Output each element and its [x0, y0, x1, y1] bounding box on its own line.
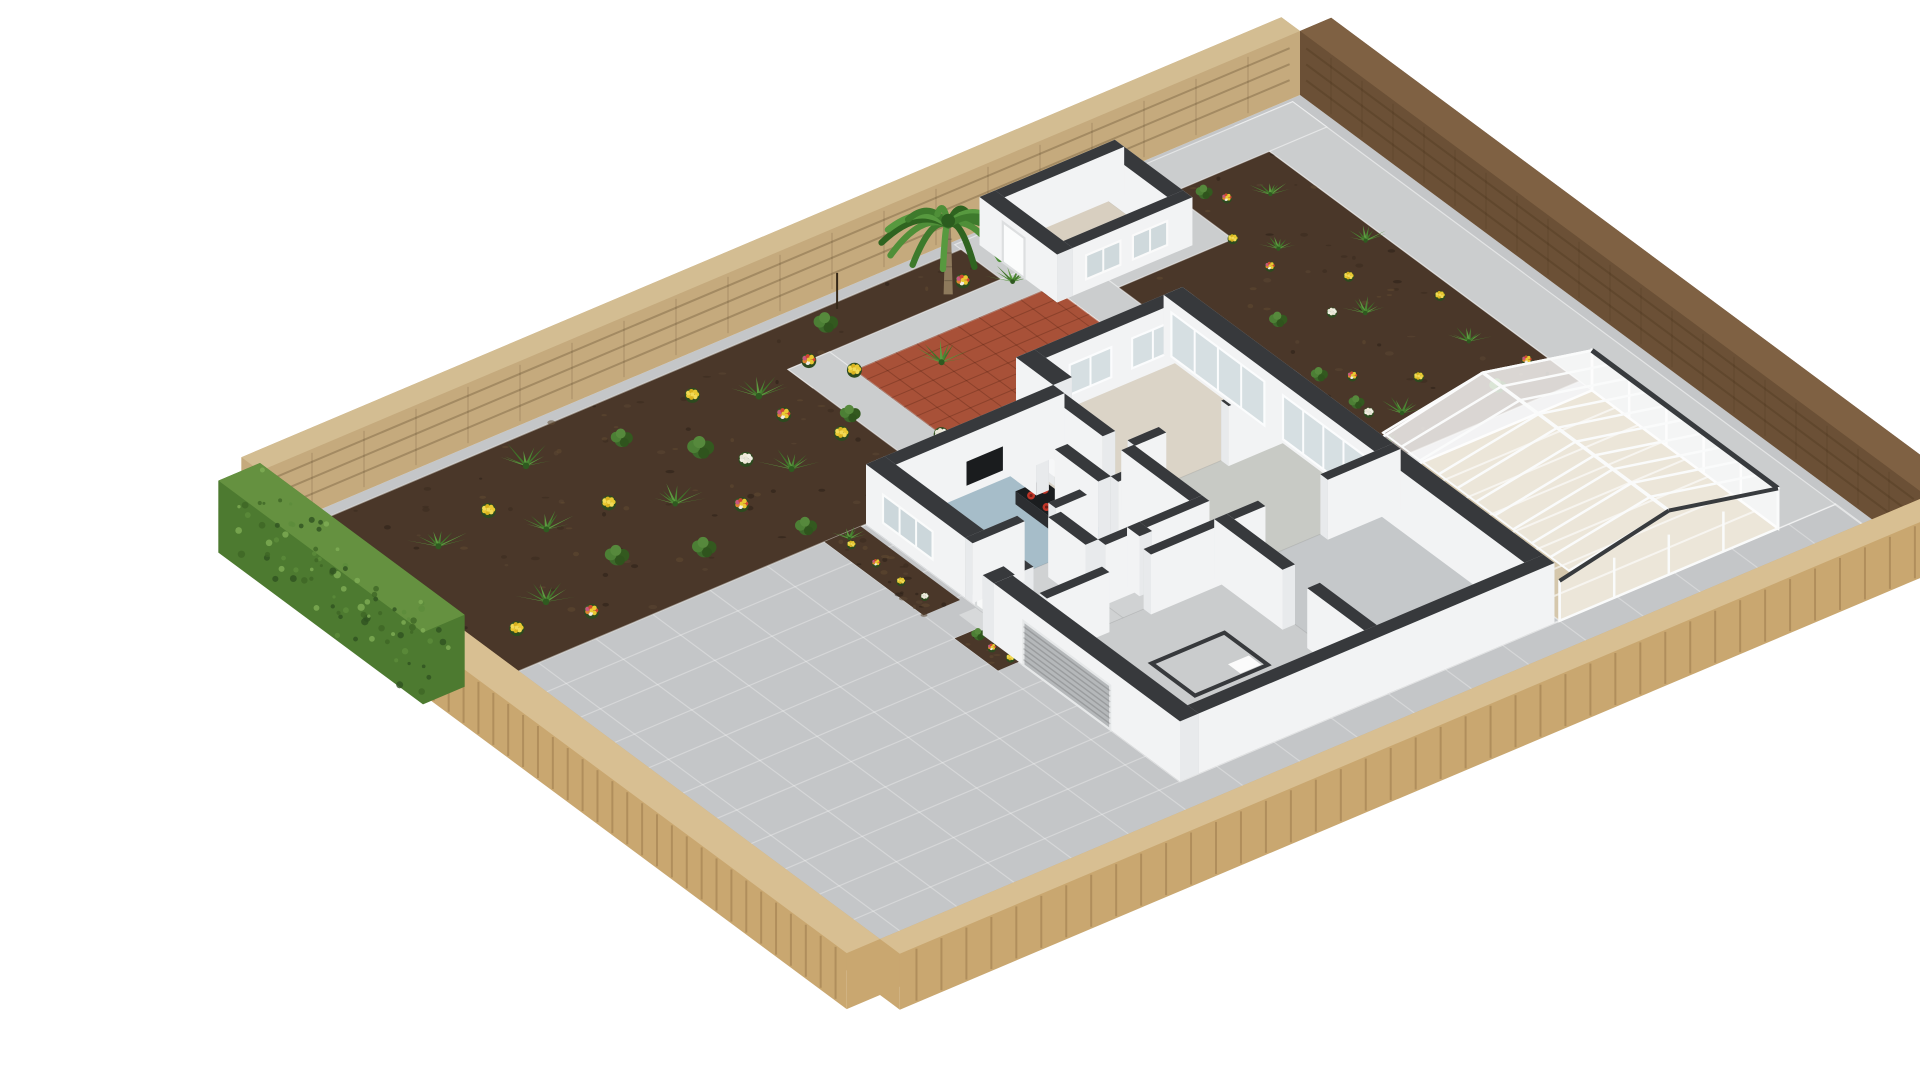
flower-cluster-flowers	[1347, 371, 1358, 382]
flower-cluster-flowers	[1265, 261, 1276, 272]
flower-cluster-flowers	[739, 452, 754, 467]
flower-cluster-flowers	[685, 388, 700, 403]
flower-cluster-flowers	[896, 577, 905, 586]
flower-cluster-flowers	[987, 643, 996, 652]
flower-cluster-flowers	[872, 559, 881, 568]
flower-cluster-flowers	[847, 540, 856, 549]
flower-cluster-flowers	[1364, 407, 1375, 418]
flower-cluster-flowers	[481, 503, 496, 518]
flower-cluster-flowers	[584, 604, 599, 619]
floorplan-3d-canvas	[0, 0, 1920, 1080]
flower-cluster-flowers	[1327, 307, 1338, 318]
flower-cluster-flowers	[847, 363, 862, 378]
floorplan-3d-viewer	[0, 0, 1920, 1080]
flower-cluster-flowers	[921, 593, 929, 601]
flower-cluster-flowers	[734, 497, 749, 512]
flower-cluster-flowers	[834, 426, 849, 441]
flower-cluster-flowers	[1344, 271, 1355, 282]
flower-cluster-flowers	[1435, 291, 1446, 302]
flower-cluster-flowers	[1228, 234, 1239, 245]
flower-cluster-flowers	[776, 407, 791, 422]
flower-cluster-flowers	[1222, 193, 1233, 204]
flower-cluster-flowers	[955, 274, 970, 289]
flower-cluster-flowers	[509, 621, 524, 636]
flower-cluster-flowers	[801, 353, 816, 368]
flower-cluster-flowers	[601, 496, 616, 511]
flower-cluster-flowers	[1414, 372, 1425, 383]
